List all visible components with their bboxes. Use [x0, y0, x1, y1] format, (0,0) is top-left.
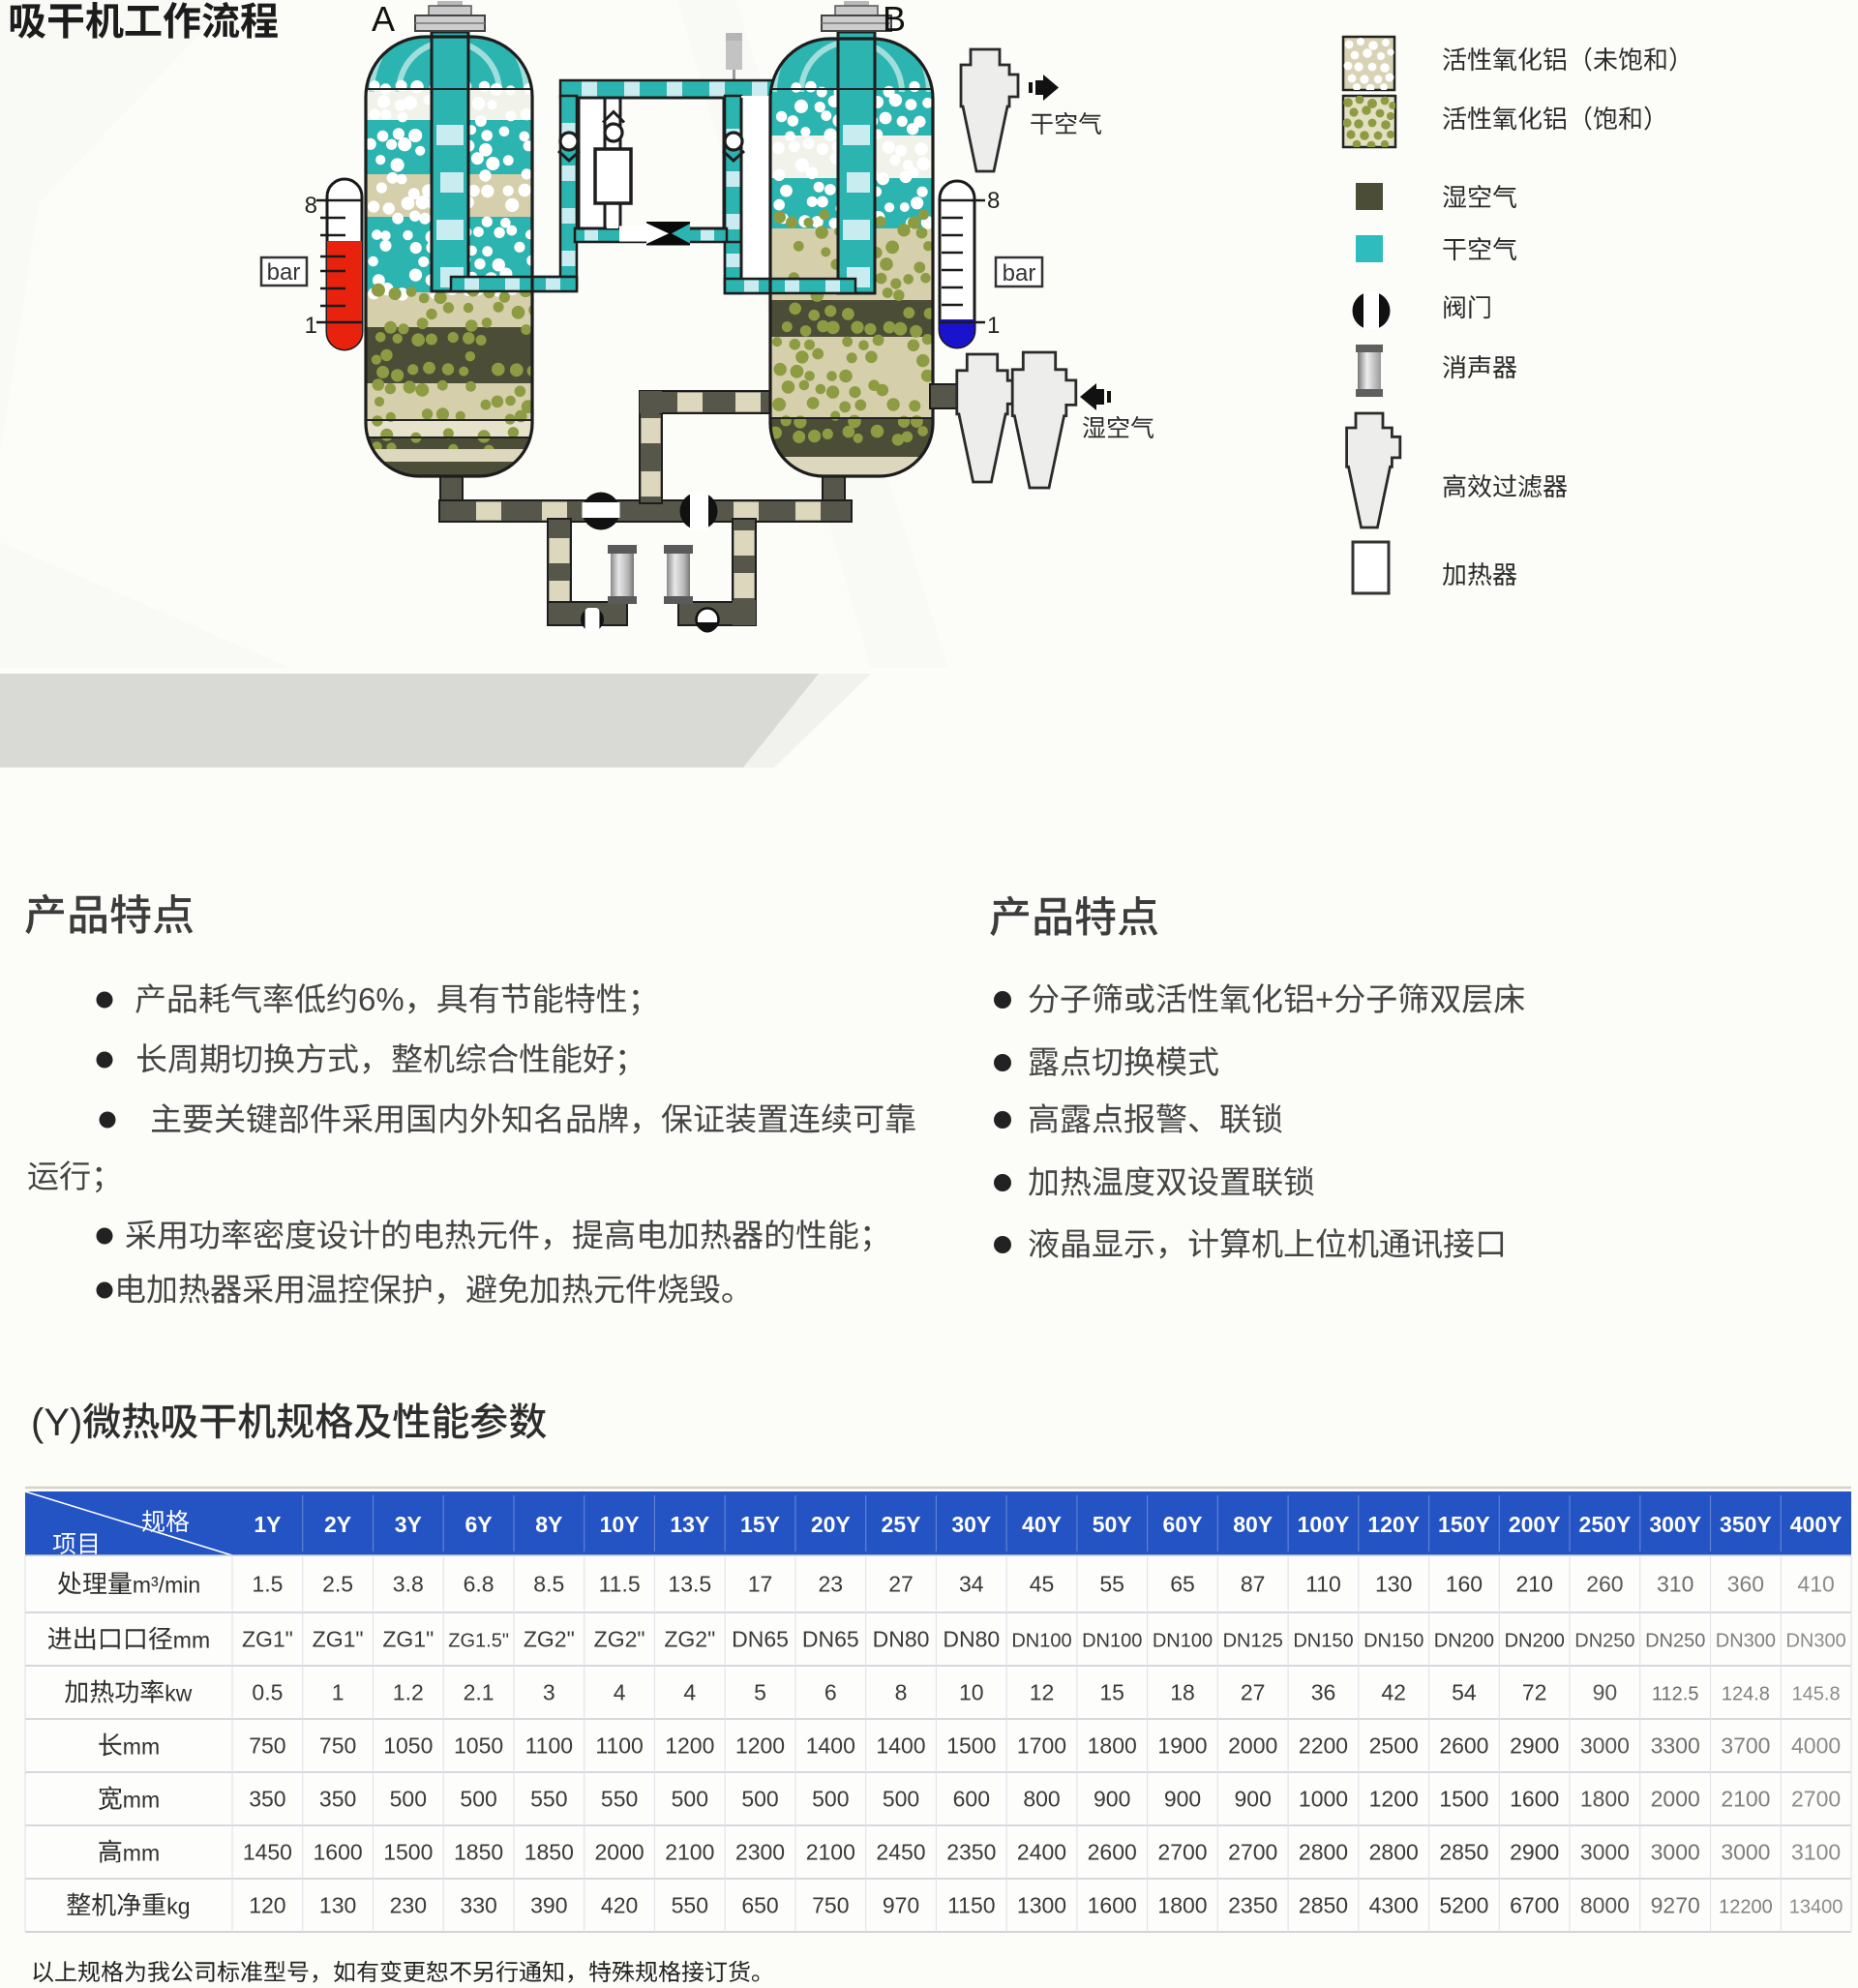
svg-text:kw: kw	[165, 1681, 193, 1706]
svg-text:2900: 2900	[1510, 1840, 1559, 1865]
svg-text:130: 130	[1375, 1572, 1412, 1597]
svg-text:2600: 2600	[1439, 1733, 1488, 1759]
svg-text:2450: 2450	[876, 1840, 925, 1865]
svg-text:m³/min: m³/min	[133, 1573, 200, 1598]
svg-text:DN250: DN250	[1645, 1631, 1705, 1652]
svg-text:B: B	[883, 0, 906, 39]
svg-text:210: 210	[1516, 1572, 1553, 1597]
svg-text:87: 87	[1241, 1572, 1266, 1597]
svg-text:1450: 1450	[243, 1840, 292, 1865]
svg-text:750: 750	[249, 1733, 285, 1759]
svg-text:2500: 2500	[1369, 1733, 1419, 1759]
svg-text:10Y: 10Y	[600, 1512, 640, 1537]
svg-text:260: 260	[1586, 1572, 1623, 1597]
svg-text:2700: 2700	[1791, 1787, 1841, 1812]
svg-text:112.5: 112.5	[1652, 1684, 1699, 1705]
svg-text:1500: 1500	[383, 1840, 433, 1865]
svg-text:1050: 1050	[454, 1733, 503, 1759]
svg-text:DN250: DN250	[1574, 1631, 1634, 1652]
svg-text:110: 110	[1305, 1572, 1341, 1597]
svg-text:2200: 2200	[1299, 1733, 1348, 1759]
svg-text:+: +	[1315, 981, 1334, 1017]
svg-text:42: 42	[1381, 1680, 1406, 1705]
svg-text:6700: 6700	[1510, 1893, 1559, 1918]
svg-text:900: 900	[1164, 1787, 1201, 1812]
svg-text:300Y: 300Y	[1649, 1512, 1701, 1537]
svg-text:2000: 2000	[1651, 1787, 1700, 1812]
svg-text:1400: 1400	[806, 1733, 855, 1759]
svg-text:12200: 12200	[1719, 1897, 1773, 1918]
svg-text:mm: mm	[123, 1788, 160, 1813]
svg-text:400Y: 400Y	[1790, 1512, 1843, 1537]
svg-text:1: 1	[332, 1680, 345, 1705]
svg-text:150Y: 150Y	[1438, 1512, 1490, 1537]
svg-text:3Y: 3Y	[395, 1512, 422, 1537]
svg-text:2100: 2100	[806, 1840, 855, 1865]
svg-text:8Y: 8Y	[535, 1512, 562, 1537]
svg-text:23: 23	[819, 1572, 844, 1597]
svg-text:1050: 1050	[383, 1733, 433, 1759]
svg-text:15: 15	[1099, 1680, 1124, 1705]
svg-text:4: 4	[614, 1680, 626, 1705]
svg-text:1900: 1900	[1157, 1733, 1207, 1759]
svg-text:1Y: 1Y	[254, 1512, 281, 1537]
svg-text:9270: 9270	[1651, 1893, 1700, 1918]
svg-text:ZG2": ZG2"	[524, 1627, 575, 1652]
svg-text:10: 10	[959, 1680, 984, 1705]
svg-text:mm: mm	[123, 1734, 160, 1760]
svg-text:25Y: 25Y	[882, 1512, 921, 1537]
svg-text:1500: 1500	[946, 1733, 996, 1759]
svg-text:80Y: 80Y	[1233, 1512, 1273, 1537]
svg-text:100Y: 100Y	[1298, 1512, 1350, 1537]
svg-text:DN200: DN200	[1505, 1631, 1565, 1652]
svg-text:550: 550	[672, 1893, 708, 1918]
svg-text:72: 72	[1522, 1680, 1547, 1705]
svg-text:DN200: DN200	[1434, 1631, 1494, 1652]
svg-text:1.2: 1.2	[393, 1680, 424, 1705]
svg-text:8000: 8000	[1580, 1893, 1630, 1918]
svg-text:1800: 1800	[1157, 1893, 1207, 1918]
svg-text:30Y: 30Y	[951, 1512, 991, 1537]
svg-text:550: 550	[601, 1787, 638, 1812]
svg-text:18: 18	[1170, 1680, 1195, 1705]
svg-text:420: 420	[601, 1893, 638, 1918]
svg-text:mm: mm	[173, 1628, 210, 1653]
svg-text:360: 360	[1727, 1572, 1764, 1597]
svg-text:2350: 2350	[1228, 1893, 1277, 1918]
svg-text:2000: 2000	[595, 1840, 644, 1865]
svg-text:2.1: 2.1	[464, 1680, 494, 1705]
svg-text:390: 390	[530, 1893, 567, 1918]
svg-text:800: 800	[1023, 1787, 1060, 1812]
svg-text:54: 54	[1452, 1680, 1477, 1705]
svg-text:350Y: 350Y	[1720, 1512, 1772, 1537]
svg-text:kg: kg	[166, 1894, 190, 1919]
svg-text:500: 500	[883, 1787, 919, 1812]
svg-text:410: 410	[1797, 1572, 1834, 1597]
svg-text:1500: 1500	[1439, 1787, 1488, 1812]
svg-text:DN100: DN100	[1153, 1631, 1213, 1652]
svg-text:DN150: DN150	[1364, 1631, 1423, 1652]
svg-text:13.5: 13.5	[668, 1572, 711, 1597]
svg-text:55: 55	[1099, 1572, 1124, 1597]
svg-text:350: 350	[319, 1787, 356, 1812]
svg-text:1800: 1800	[1580, 1787, 1630, 1812]
svg-text:3.8: 3.8	[393, 1572, 424, 1597]
svg-text:2300: 2300	[735, 1840, 785, 1865]
svg-text:120Y: 120Y	[1367, 1512, 1420, 1537]
svg-text:27: 27	[888, 1572, 914, 1597]
svg-text:60Y: 60Y	[1163, 1512, 1203, 1537]
svg-text:230: 230	[390, 1893, 427, 1918]
svg-text:65: 65	[1170, 1572, 1195, 1597]
svg-text:2800: 2800	[1299, 1840, 1348, 1865]
svg-text:ZG2": ZG2"	[664, 1627, 715, 1652]
svg-text:145.8: 145.8	[1792, 1684, 1841, 1705]
svg-text:ZG1.5": ZG1.5"	[448, 1631, 509, 1652]
svg-text:6Y: 6Y	[465, 1512, 493, 1537]
svg-text:13Y: 13Y	[670, 1512, 709, 1537]
svg-text:DN150: DN150	[1293, 1631, 1353, 1652]
svg-text:1100: 1100	[595, 1733, 643, 1759]
svg-text:1600: 1600	[1088, 1893, 1137, 1918]
svg-text:50Y: 50Y	[1093, 1512, 1132, 1537]
svg-text:330: 330	[460, 1893, 496, 1918]
svg-text:1000: 1000	[1299, 1787, 1348, 1812]
svg-text:40Y: 40Y	[1022, 1512, 1062, 1537]
svg-text:1850: 1850	[524, 1840, 574, 1865]
svg-text:350: 350	[249, 1787, 285, 1812]
svg-text:4: 4	[683, 1680, 696, 1705]
svg-text:2Y: 2Y	[324, 1512, 351, 1537]
svg-text:(Y): (Y)	[31, 1401, 82, 1444]
svg-text:ZG1": ZG1"	[313, 1627, 364, 1652]
svg-text:1.5: 1.5	[252, 1572, 283, 1597]
svg-text:DN65: DN65	[802, 1627, 859, 1652]
svg-text:500: 500	[741, 1787, 778, 1812]
svg-text:mm: mm	[123, 1841, 160, 1866]
svg-text:2900: 2900	[1510, 1733, 1559, 1759]
svg-text:DN300: DN300	[1716, 1631, 1776, 1652]
svg-text:27: 27	[1241, 1680, 1266, 1705]
svg-text:2400: 2400	[1017, 1840, 1066, 1865]
svg-text:2700: 2700	[1157, 1840, 1207, 1865]
svg-text:124.8: 124.8	[1722, 1684, 1770, 1705]
svg-text:8.5: 8.5	[533, 1572, 564, 1597]
svg-text:2800: 2800	[1369, 1840, 1419, 1865]
svg-text:130: 130	[319, 1893, 356, 1918]
svg-text:DN80: DN80	[943, 1627, 1000, 1652]
svg-text:20Y: 20Y	[811, 1512, 851, 1537]
svg-text:bar: bar	[1003, 260, 1036, 286]
svg-text:200Y: 200Y	[1509, 1512, 1561, 1537]
svg-text:1700: 1700	[1017, 1733, 1066, 1759]
svg-text:1200: 1200	[665, 1733, 714, 1759]
svg-text:3: 3	[543, 1680, 555, 1705]
svg-text:2.5: 2.5	[322, 1572, 353, 1597]
svg-text:2700: 2700	[1228, 1840, 1277, 1865]
svg-text:1400: 1400	[876, 1733, 925, 1759]
svg-text:160: 160	[1446, 1572, 1483, 1597]
svg-text:ZG2": ZG2"	[594, 1627, 645, 1652]
svg-text:5200: 5200	[1439, 1893, 1488, 1918]
svg-text:3700: 3700	[1721, 1733, 1770, 1759]
svg-text:12: 12	[1030, 1680, 1055, 1705]
svg-text:DN300: DN300	[1785, 1631, 1845, 1652]
svg-text:250Y: 250Y	[1579, 1512, 1632, 1537]
svg-text:3300: 3300	[1651, 1733, 1700, 1759]
svg-text:900: 900	[1235, 1787, 1272, 1812]
svg-text:500: 500	[812, 1787, 849, 1812]
svg-text:3000: 3000	[1580, 1840, 1630, 1865]
svg-text:8: 8	[305, 193, 317, 219]
svg-text:1600: 1600	[314, 1840, 363, 1865]
svg-text:8: 8	[987, 188, 1000, 214]
svg-text:DN100: DN100	[1082, 1631, 1142, 1652]
svg-text:1: 1	[305, 313, 317, 339]
svg-text:A: A	[372, 0, 395, 39]
svg-text:3100: 3100	[1791, 1840, 1841, 1865]
svg-text:900: 900	[1094, 1787, 1130, 1812]
svg-text:1100: 1100	[525, 1733, 573, 1759]
svg-text:2000: 2000	[1228, 1733, 1277, 1759]
svg-text:2850: 2850	[1299, 1893, 1348, 1918]
svg-text:17: 17	[748, 1572, 773, 1597]
svg-text:750: 750	[319, 1733, 356, 1759]
svg-text:DN65: DN65	[732, 1627, 789, 1652]
svg-text:DN125: DN125	[1223, 1631, 1283, 1652]
svg-text:4000: 4000	[1791, 1733, 1841, 1759]
svg-text:1600: 1600	[1510, 1787, 1559, 1812]
svg-text:34: 34	[959, 1572, 984, 1597]
svg-text:1200: 1200	[1369, 1787, 1419, 1812]
svg-text:650: 650	[741, 1893, 778, 1918]
svg-text:6: 6	[824, 1680, 837, 1705]
svg-text:500: 500	[672, 1787, 708, 1812]
svg-text:0.5: 0.5	[252, 1680, 283, 1705]
svg-text:1: 1	[987, 313, 1000, 339]
svg-text:8: 8	[895, 1680, 908, 1705]
svg-text:120: 120	[249, 1893, 285, 1918]
svg-text:970: 970	[883, 1893, 919, 1918]
svg-text:1800: 1800	[1088, 1733, 1137, 1759]
svg-text:3000: 3000	[1580, 1733, 1630, 1759]
svg-text:1200: 1200	[735, 1733, 785, 1759]
svg-text:3000: 3000	[1721, 1840, 1770, 1865]
svg-text:ZG1": ZG1"	[382, 1627, 434, 1652]
svg-text:11.5: 11.5	[599, 1572, 641, 1597]
svg-text:1850: 1850	[454, 1840, 503, 1865]
svg-text:2100: 2100	[1721, 1787, 1770, 1812]
svg-text:DN100: DN100	[1011, 1631, 1071, 1652]
svg-text:500: 500	[460, 1787, 496, 1812]
svg-text:36: 36	[1311, 1680, 1336, 1705]
svg-text:5: 5	[754, 1680, 766, 1705]
svg-text:310: 310	[1657, 1572, 1693, 1597]
svg-text:2850: 2850	[1439, 1840, 1488, 1865]
svg-text:13400: 13400	[1789, 1897, 1843, 1918]
svg-text:1150: 1150	[947, 1893, 995, 1918]
svg-text:90: 90	[1593, 1680, 1618, 1705]
svg-text:2600: 2600	[1088, 1840, 1137, 1865]
svg-text:500: 500	[390, 1787, 427, 1812]
svg-text:750: 750	[812, 1893, 849, 1918]
svg-text:2100: 2100	[665, 1840, 714, 1865]
svg-text:600: 600	[953, 1787, 990, 1812]
svg-text:2350: 2350	[946, 1840, 996, 1865]
svg-text:45: 45	[1030, 1572, 1055, 1597]
svg-text:6.8: 6.8	[464, 1572, 494, 1597]
svg-text:6%: 6%	[358, 981, 405, 1017]
svg-text:3000: 3000	[1651, 1840, 1700, 1865]
svg-text:1300: 1300	[1017, 1893, 1066, 1918]
svg-text:4300: 4300	[1369, 1893, 1419, 1918]
svg-text:15Y: 15Y	[740, 1512, 780, 1537]
svg-text:ZG1": ZG1"	[242, 1627, 293, 1652]
svg-text:550: 550	[530, 1787, 567, 1812]
svg-text:bar: bar	[267, 259, 301, 286]
svg-text:DN80: DN80	[873, 1627, 930, 1652]
